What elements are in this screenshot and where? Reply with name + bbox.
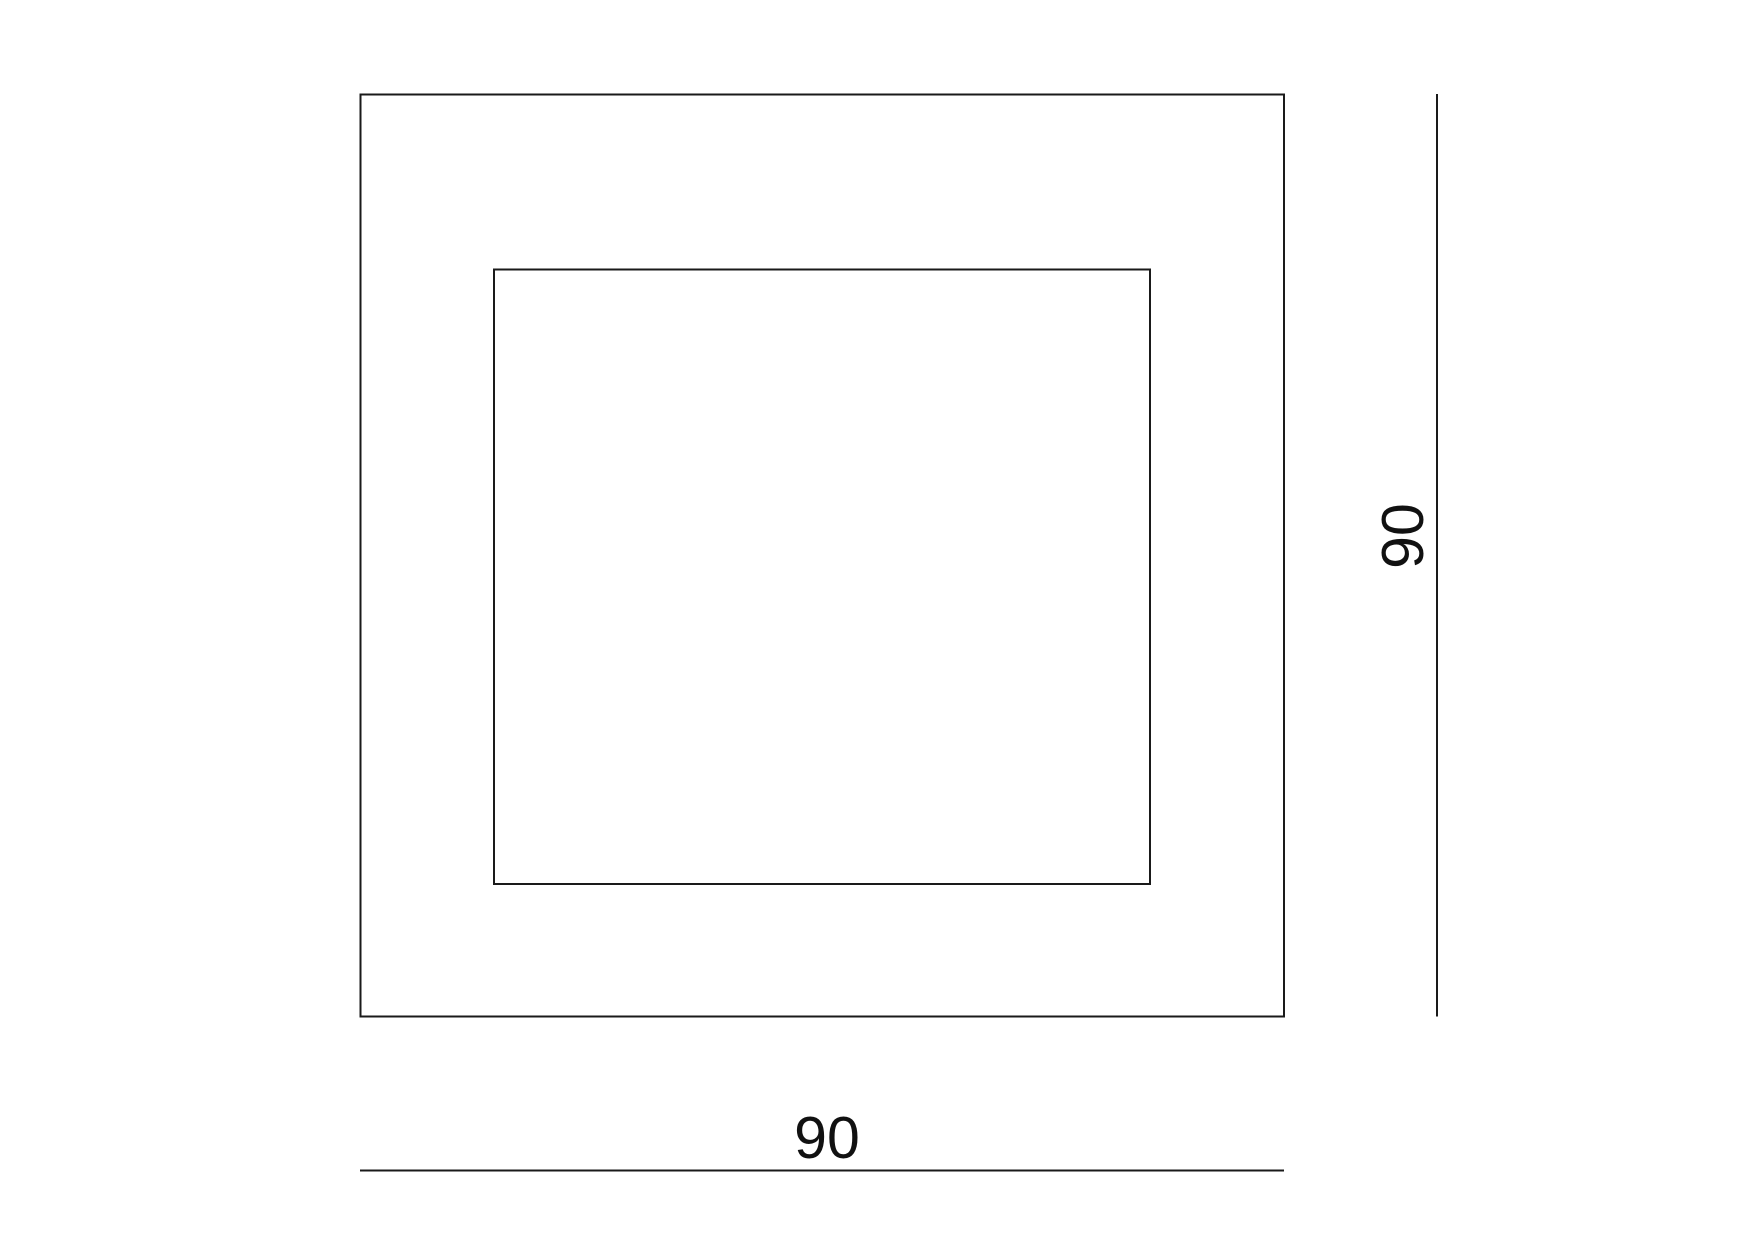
- svg-text:90: 90: [1370, 503, 1436, 569]
- svg-text:90: 90: [794, 1105, 860, 1171]
